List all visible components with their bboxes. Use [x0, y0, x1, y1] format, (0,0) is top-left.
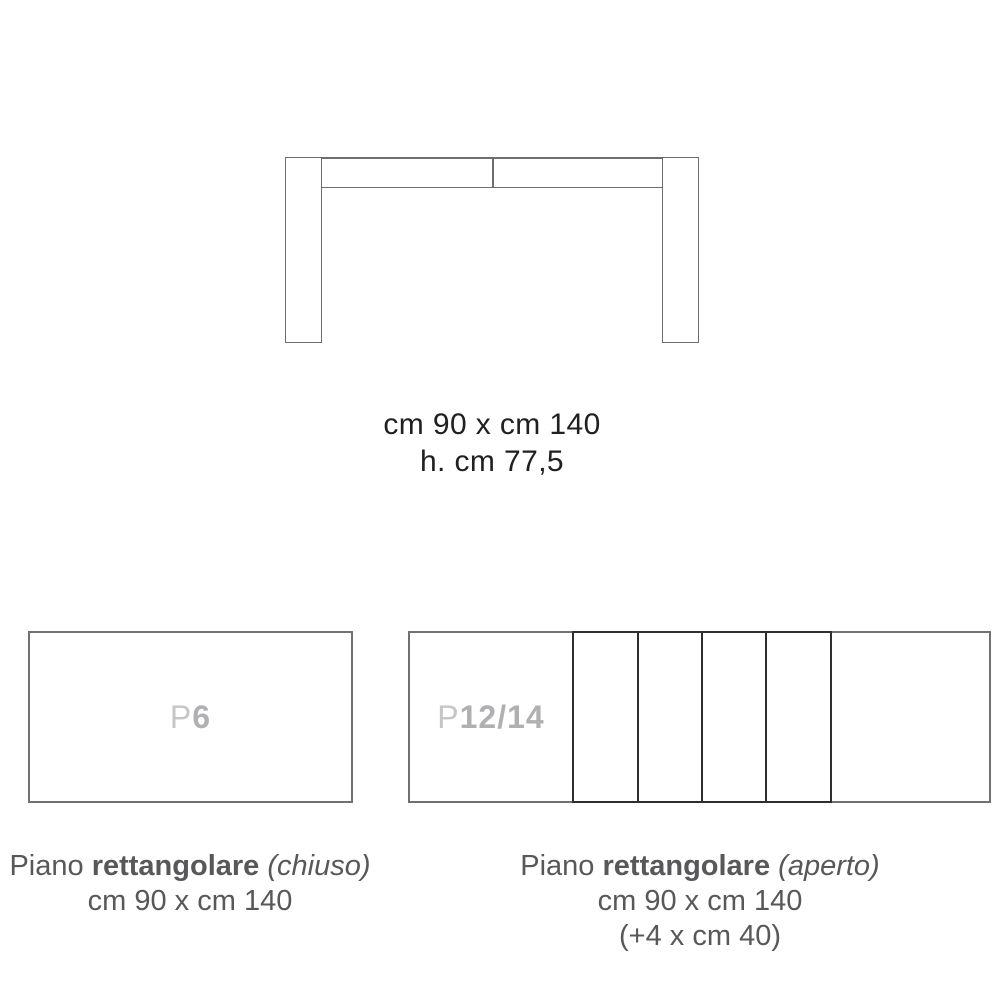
table-apron [321, 157, 663, 188]
caption-word-plain: Piano [520, 850, 594, 882]
closed-top-label-prefix: P [170, 699, 192, 736]
leaf-divider-line [765, 633, 767, 801]
caption-word-bold: rettangolare [603, 850, 771, 882]
open-top-caption-line3: (+4 x cm 40) [510, 919, 890, 954]
dimension-top-size: cm 90 x cm 140 [285, 406, 699, 443]
open-top-label-value: 12/14 [460, 699, 545, 736]
open-top-label-prefix: P [437, 699, 459, 736]
caption-word-italic: (aperto) [778, 850, 880, 882]
leaf-divider-line [637, 633, 639, 801]
closed-top-diagram: P6 [28, 631, 353, 803]
caption-word-plain: Piano [9, 850, 83, 882]
open-top-diagram: P12/14 [408, 631, 991, 803]
apron-center-divider-line [492, 158, 494, 187]
table-leg-left [285, 157, 322, 343]
table-leg-right [662, 157, 699, 343]
closed-top-label: P6 [30, 633, 351, 801]
table-spec-sheet: cm 90 x cm 140 h. cm 77,5 P6 P12/14 Pian… [0, 0, 1000, 1000]
leaf-divider-line [701, 633, 703, 801]
front-view-dimensions: cm 90 x cm 140 h. cm 77,5 [285, 406, 699, 480]
caption-word-bold: rettangolare [92, 850, 260, 882]
closed-top-caption-line1: Piano rettangolare (chiuso) [0, 849, 380, 884]
open-top-caption: Piano rettangolare (aperto) cm 90 x cm 1… [510, 849, 890, 954]
closed-top-caption: Piano rettangolare (chiuso) cm 90 x cm 1… [0, 849, 380, 919]
open-top-label: P12/14 [410, 633, 572, 801]
closed-top-label-value: 6 [192, 699, 211, 736]
closed-top-caption-line2: cm 90 x cm 140 [0, 884, 380, 919]
open-top-caption-line2: cm 90 x cm 140 [510, 884, 890, 919]
extension-leaves-group [572, 631, 832, 803]
open-top-caption-line1: Piano rettangolare (aperto) [510, 849, 890, 884]
dimension-height: h. cm 77,5 [285, 443, 699, 480]
table-front-view-drawing [285, 157, 699, 343]
caption-word-italic: (chiuso) [267, 850, 370, 882]
